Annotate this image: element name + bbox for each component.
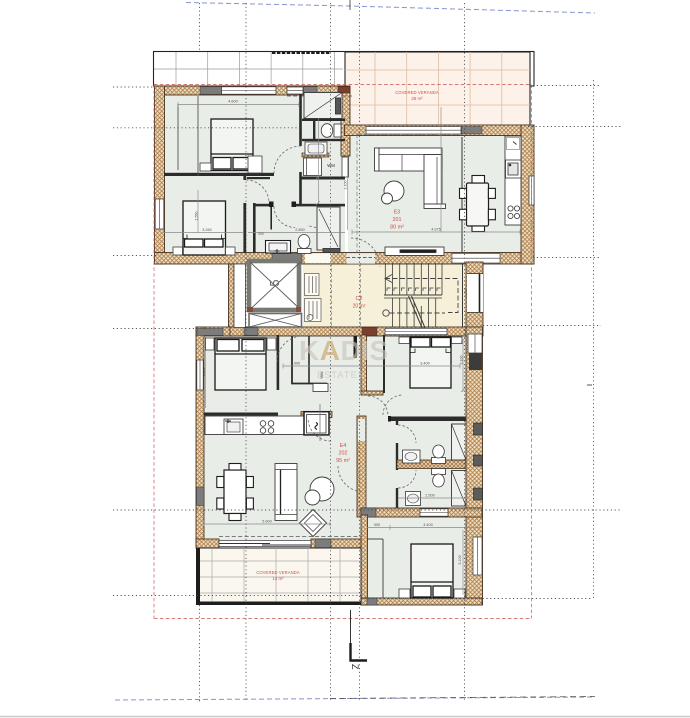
- svg-text:4.600: 4.600: [228, 100, 238, 104]
- svg-text:2.500: 2.500: [425, 494, 435, 498]
- svg-text:80 m²: 80 m²: [390, 225, 404, 231]
- svg-text:900: 900: [258, 232, 264, 236]
- svg-text:5: 5: [267, 279, 282, 286]
- svg-text:201: 201: [393, 217, 402, 223]
- svg-text:4.975: 4.975: [431, 228, 441, 232]
- svg-text:WM: WM: [327, 163, 335, 168]
- svg-text:3.400: 3.400: [423, 523, 433, 527]
- svg-text:2.850: 2.850: [295, 228, 305, 232]
- svg-text:COVERED VERANDA: COVERED VERANDA: [395, 90, 439, 95]
- svg-text:C2: C2: [356, 296, 363, 302]
- svg-text:1.100: 1.100: [344, 181, 348, 190]
- svg-text:3.400: 3.400: [420, 362, 430, 366]
- svg-text:KADIS: KADIS: [299, 335, 389, 366]
- svg-text:28 m²: 28 m²: [411, 96, 423, 101]
- svg-text:3.100: 3.100: [460, 356, 464, 365]
- svg-text:95 m²: 95 m²: [336, 458, 350, 464]
- svg-text:E3: E3: [394, 210, 401, 216]
- svg-text:ESTATES: ESTATES: [317, 370, 365, 380]
- svg-text:5.900: 5.900: [262, 520, 272, 524]
- svg-text:E4: E4: [340, 443, 347, 449]
- svg-text:3.260: 3.260: [202, 228, 212, 232]
- svg-text:1.550: 1.550: [195, 212, 199, 221]
- svg-text:900: 900: [374, 523, 380, 527]
- svg-text:COVERED VERANDA: COVERED VERANDA: [256, 570, 300, 575]
- svg-text:202: 202: [339, 451, 348, 457]
- svg-text:14 m²: 14 m²: [272, 576, 284, 581]
- svg-text:Z: Z: [350, 664, 360, 670]
- svg-text:3.100: 3.100: [458, 555, 462, 565]
